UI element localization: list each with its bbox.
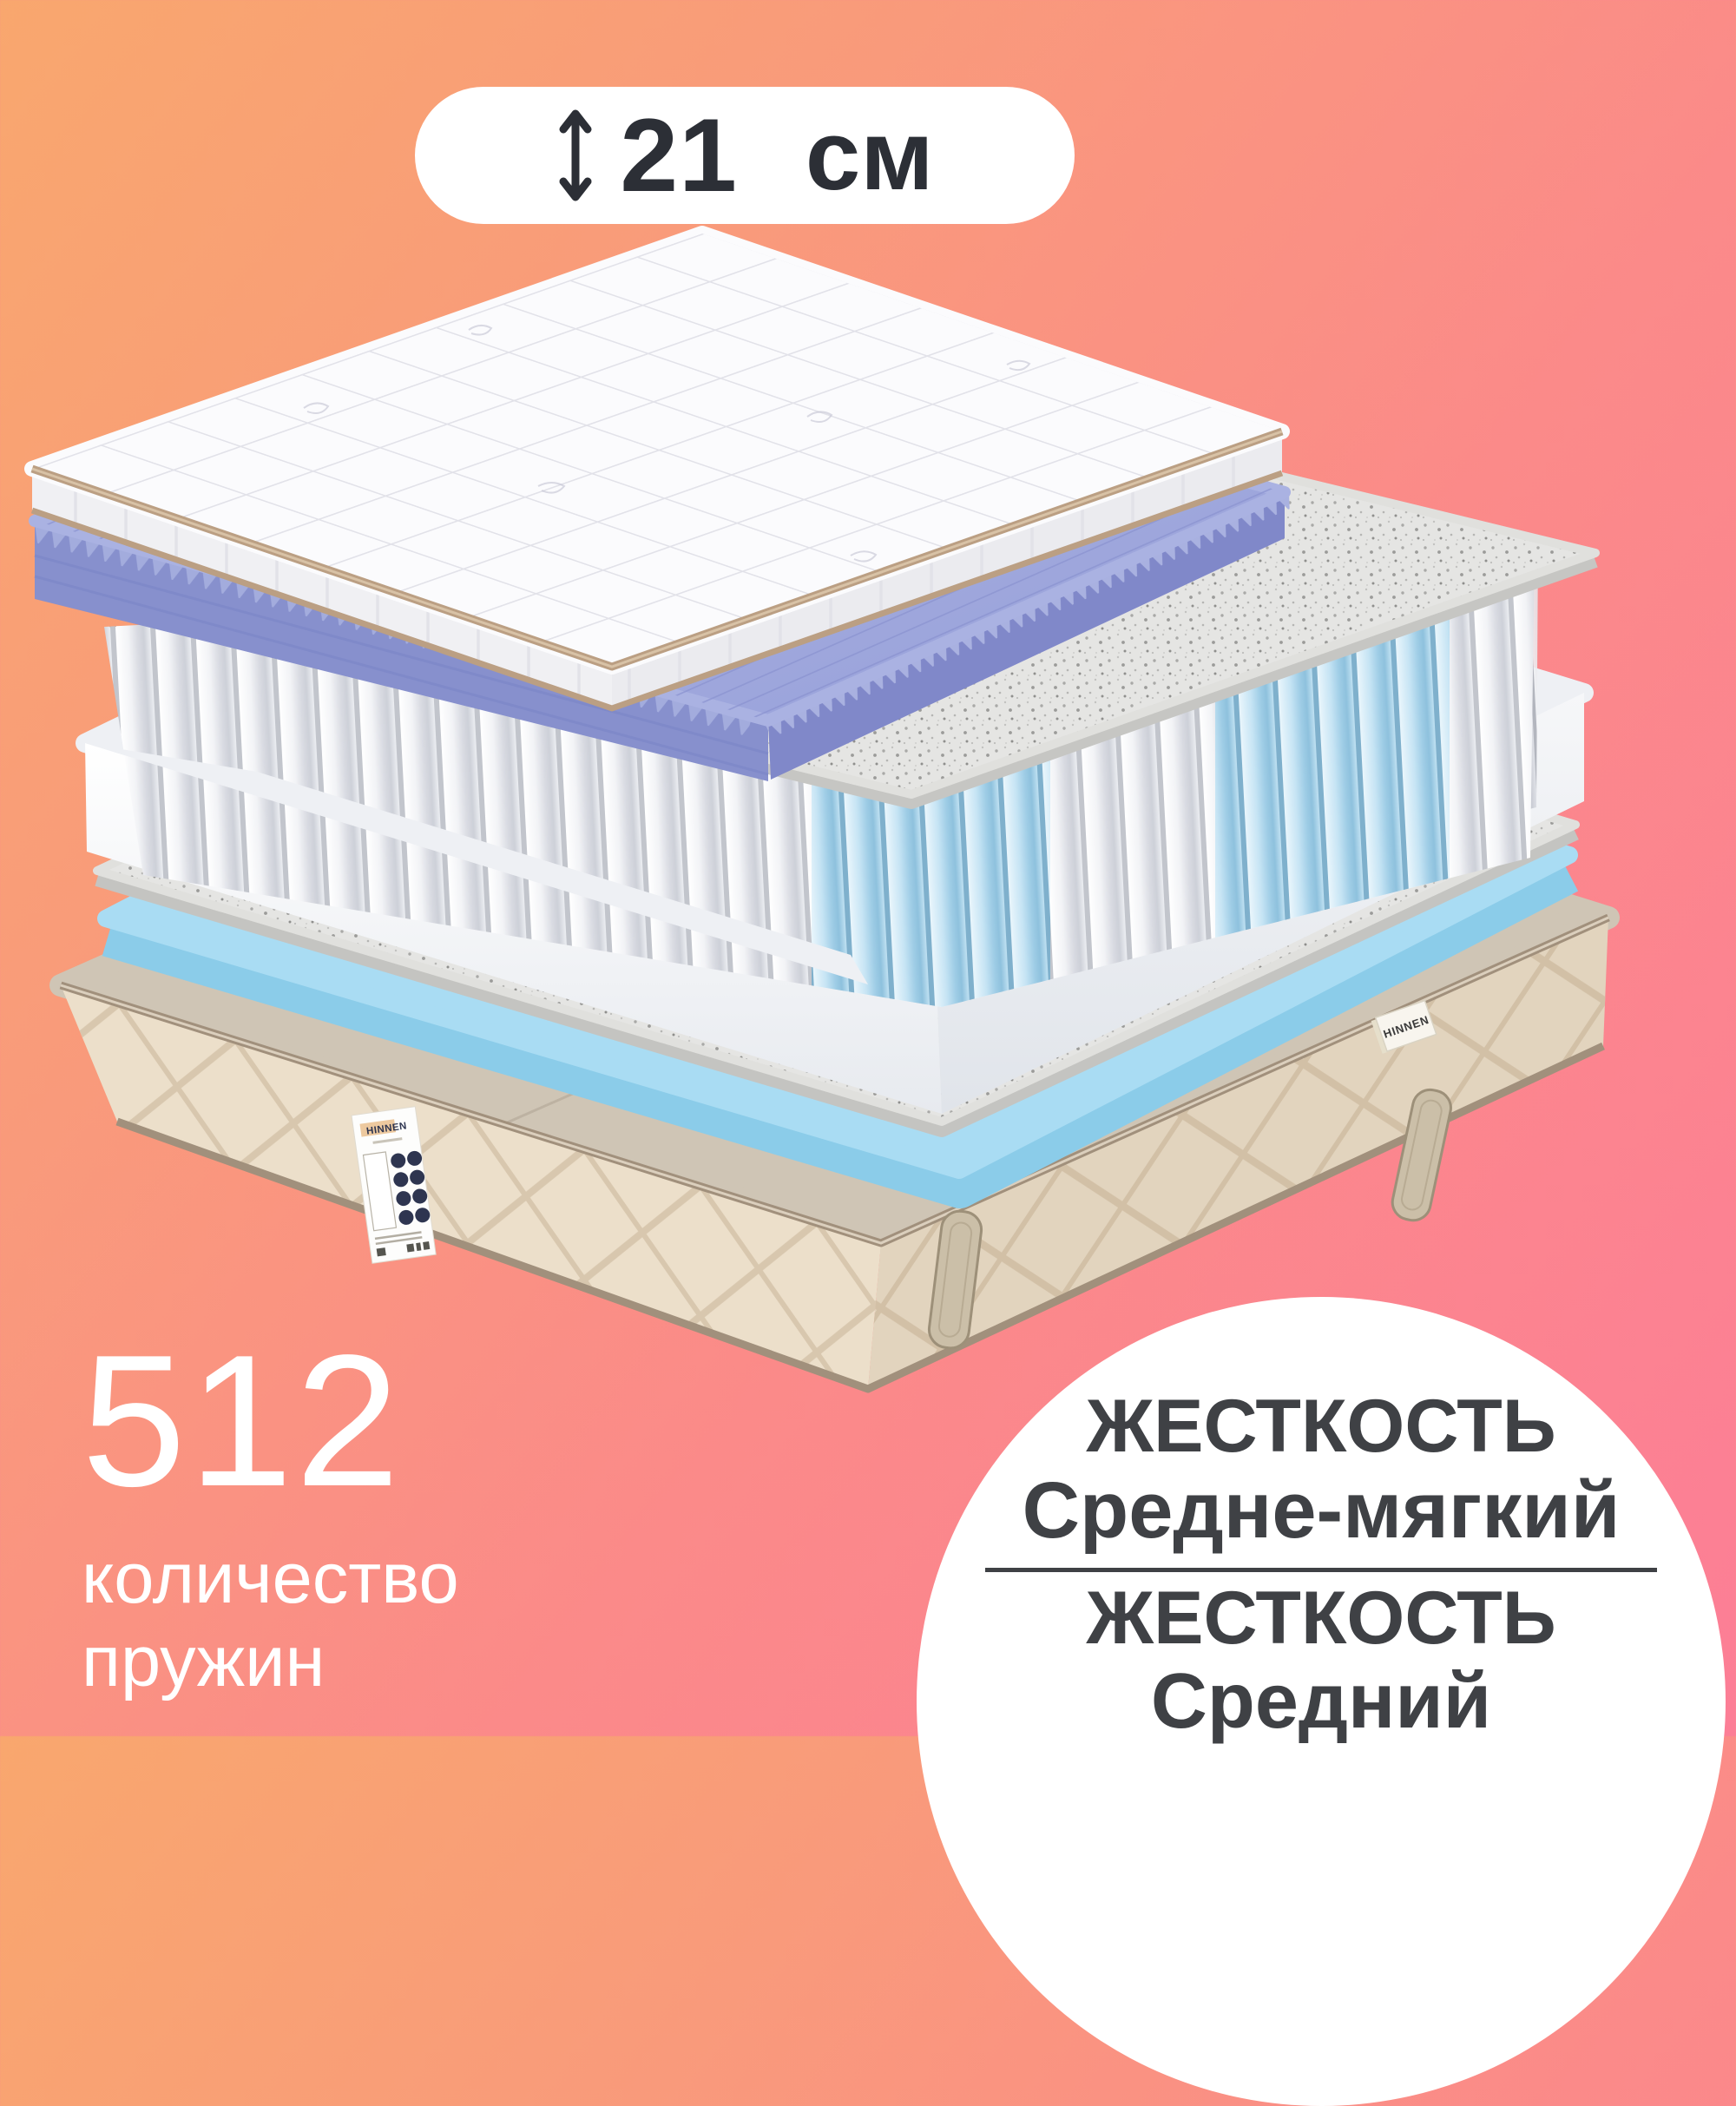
firmness-circle: ЖЕСТКОСТЬ Средне-мягкий ЖЕСТКОСТЬ Средни… bbox=[917, 1297, 1726, 2106]
firmness-value-a: Средне-мягкий bbox=[1023, 1469, 1621, 1553]
height-badge: 21 см bbox=[415, 87, 1075, 224]
firmness-value-b: Средний bbox=[1151, 1661, 1491, 1743]
springs-count: 512 bbox=[82, 1326, 459, 1514]
springs-caption-line1: количество bbox=[82, 1537, 459, 1620]
springs-caption-line2: пружин bbox=[82, 1620, 459, 1703]
height-double-arrow-icon bbox=[556, 107, 595, 204]
firmness-divider bbox=[985, 1568, 1657, 1572]
product-image: HINNEN HINNEN bbox=[0, 0, 1736, 1736]
spring-count-stat: 512 количество пружин bbox=[82, 1326, 459, 1704]
firmness-title-a: ЖЕСТКОСТЬ bbox=[1086, 1389, 1555, 1465]
height-value: 21 bbox=[620, 95, 737, 215]
height-unit: см bbox=[806, 99, 934, 213]
firmness-title-b: ЖЕСТКОСТЬ bbox=[1086, 1581, 1555, 1657]
